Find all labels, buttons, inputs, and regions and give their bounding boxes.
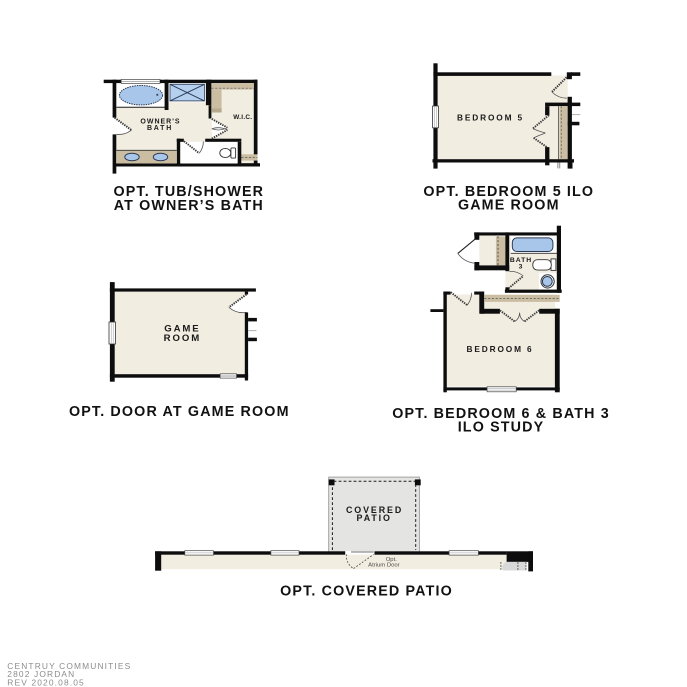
svg-text:BEDROOM 6: BEDROOM 6	[467, 344, 534, 354]
svg-text:BEDROOM 5: BEDROOM 5	[457, 112, 524, 122]
svg-text:BATH: BATH	[147, 125, 173, 132]
svg-text:3: 3	[519, 264, 524, 271]
svg-text:PATIO: PATIO	[357, 513, 392, 523]
svg-text:REV 2020.08.05: REV 2020.08.05	[7, 678, 85, 687]
svg-text:W.I.C.: W.I.C.	[233, 114, 252, 121]
svg-text:AT OWNER’S BATH: AT OWNER’S BATH	[114, 198, 264, 214]
svg-text:Atrium Door: Atrium Door	[368, 563, 399, 569]
svg-text:OPT. COVERED PATIO: OPT. COVERED PATIO	[280, 583, 453, 599]
svg-text:OPT. DOOR AT GAME ROOM: OPT. DOOR AT GAME ROOM	[69, 404, 290, 420]
svg-text:ILO STUDY: ILO STUDY	[458, 419, 545, 435]
svg-text:GAME ROOM: GAME ROOM	[458, 198, 560, 214]
svg-text:ROOM: ROOM	[164, 333, 201, 344]
